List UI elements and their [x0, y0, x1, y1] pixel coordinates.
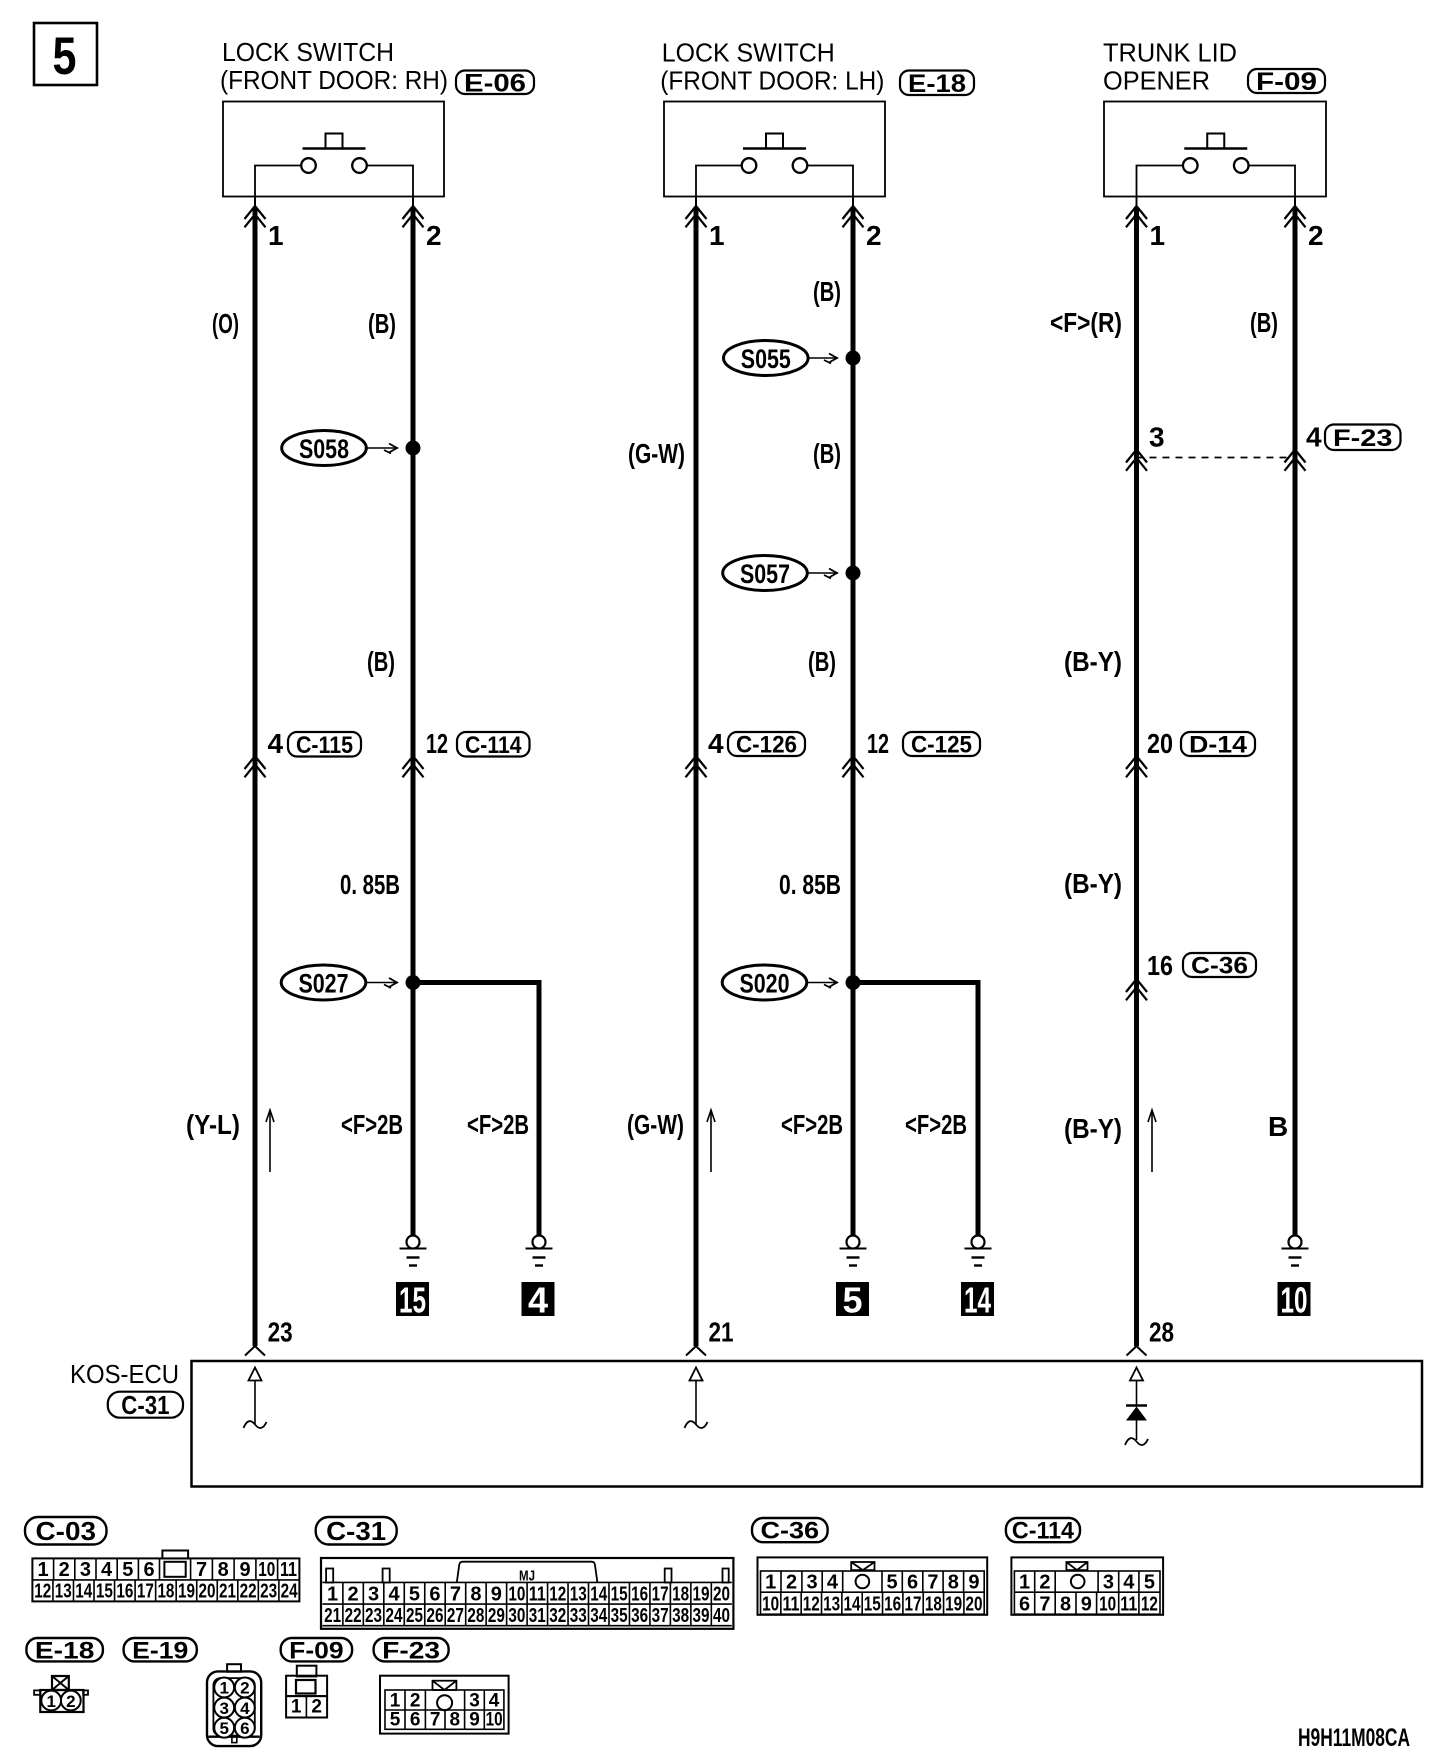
svg-text:9: 9: [239, 1559, 250, 1581]
svg-text:11: 11: [782, 1594, 799, 1616]
svg-text:12: 12: [803, 1594, 820, 1616]
svg-text:F-09: F-09: [289, 1637, 343, 1664]
svg-text:24: 24: [281, 1581, 299, 1603]
svg-text:C-36: C-36: [1191, 953, 1248, 980]
svg-text:15: 15: [399, 1280, 426, 1321]
svg-text:4: 4: [708, 728, 724, 759]
svg-text:4: 4: [101, 1559, 113, 1581]
svg-text:0. 85B: 0. 85B: [779, 869, 841, 900]
svg-text:4: 4: [240, 1699, 250, 1718]
svg-text:C-114: C-114: [1012, 1518, 1075, 1545]
svg-text:6: 6: [240, 1719, 249, 1738]
svg-text:7: 7: [450, 1584, 461, 1606]
svg-text:3: 3: [806, 1572, 817, 1594]
svg-text:13: 13: [823, 1594, 840, 1616]
svg-text:(B): (B): [808, 646, 836, 677]
svg-text:26: 26: [426, 1605, 443, 1627]
svg-text:F-23: F-23: [382, 1637, 440, 1664]
svg-text:KOS-ECU: KOS-ECU: [70, 1359, 179, 1389]
svg-text:E-19: E-19: [132, 1637, 188, 1664]
svg-text:30: 30: [508, 1605, 525, 1627]
svg-text:4: 4: [827, 1572, 839, 1594]
svg-text:7: 7: [430, 1710, 441, 1731]
svg-text:36: 36: [631, 1605, 648, 1627]
svg-text:8: 8: [1060, 1594, 1071, 1616]
svg-text:15: 15: [864, 1594, 881, 1616]
svg-text:1: 1: [37, 1559, 48, 1581]
svg-text:38: 38: [672, 1605, 689, 1627]
svg-text:5: 5: [219, 1719, 228, 1738]
svg-text:22: 22: [240, 1581, 257, 1603]
svg-text:E-18: E-18: [35, 1637, 95, 1664]
svg-text:1: 1: [219, 1679, 228, 1698]
svg-text:10: 10: [486, 1710, 503, 1731]
svg-text:1: 1: [291, 1697, 302, 1718]
svg-text:(B): (B): [813, 276, 841, 307]
svg-text:12: 12: [549, 1584, 566, 1606]
svg-text:S058: S058: [299, 434, 349, 464]
svg-text:1: 1: [709, 220, 725, 251]
svg-text:15: 15: [611, 1584, 628, 1606]
svg-text:C-125: C-125: [911, 732, 972, 759]
svg-text:4: 4: [1306, 422, 1322, 453]
svg-text:(FRONT DOOR: LH): (FRONT DOOR: LH): [660, 66, 884, 96]
svg-text:18: 18: [925, 1594, 942, 1616]
svg-text:12: 12: [34, 1581, 51, 1603]
svg-text:(O): (O): [212, 308, 239, 339]
svg-text:8: 8: [450, 1710, 461, 1731]
svg-text:C-114: C-114: [465, 732, 522, 759]
svg-text:3: 3: [1149, 422, 1165, 453]
svg-text:3: 3: [80, 1559, 91, 1581]
svg-text:F-23: F-23: [1333, 425, 1393, 452]
svg-text:2: 2: [240, 1679, 249, 1698]
svg-text:E-06: E-06: [464, 69, 526, 97]
svg-text:1: 1: [268, 220, 284, 251]
svg-text:10: 10: [258, 1559, 275, 1581]
svg-text:11: 11: [529, 1584, 546, 1606]
svg-text:21: 21: [219, 1581, 236, 1603]
svg-text:(B): (B): [813, 438, 841, 469]
svg-text:0. 85B: 0. 85B: [340, 869, 400, 900]
svg-text:16: 16: [1147, 950, 1173, 981]
svg-text:16: 16: [116, 1581, 133, 1603]
svg-text:1: 1: [1019, 1572, 1030, 1594]
svg-text:2: 2: [866, 220, 882, 251]
svg-text:20: 20: [713, 1584, 730, 1606]
svg-text:5: 5: [887, 1572, 898, 1594]
svg-text:17: 17: [652, 1584, 669, 1606]
svg-text:37: 37: [652, 1605, 669, 1627]
svg-text:C-31: C-31: [326, 1516, 386, 1546]
svg-text:(G-W): (G-W): [628, 438, 685, 469]
svg-text:<F>(R): <F>(R): [1050, 307, 1122, 338]
svg-text:2: 2: [426, 220, 442, 251]
svg-text:7: 7: [1039, 1594, 1050, 1616]
svg-text:20: 20: [199, 1581, 216, 1603]
svg-text:20: 20: [966, 1594, 983, 1616]
svg-text:15: 15: [96, 1581, 113, 1603]
svg-text:C-36: C-36: [761, 1518, 820, 1545]
svg-text:21: 21: [324, 1605, 341, 1627]
svg-text:5: 5: [842, 1280, 862, 1321]
svg-text:13: 13: [55, 1581, 72, 1603]
svg-text:5: 5: [409, 1584, 420, 1606]
svg-text:34: 34: [590, 1605, 608, 1627]
svg-text:4: 4: [268, 728, 284, 759]
svg-text:10: 10: [762, 1594, 779, 1616]
svg-text:H9H11M08CA: H9H11M08CA: [1298, 1724, 1410, 1752]
svg-text:LOCK SWITCH: LOCK SWITCH: [222, 37, 394, 67]
svg-text:8: 8: [470, 1584, 481, 1606]
svg-text:4: 4: [388, 1584, 400, 1606]
svg-text:2: 2: [66, 1692, 75, 1711]
svg-text:24: 24: [386, 1605, 404, 1627]
svg-text:C-31: C-31: [121, 1390, 169, 1420]
svg-text:9: 9: [469, 1710, 480, 1731]
svg-text:6: 6: [907, 1572, 918, 1594]
svg-text:11: 11: [280, 1559, 297, 1581]
svg-text:LOCK SWITCH: LOCK SWITCH: [662, 38, 835, 68]
svg-text:29: 29: [488, 1605, 505, 1627]
svg-text:4: 4: [489, 1691, 500, 1712]
svg-text:8: 8: [948, 1572, 959, 1594]
svg-text:9: 9: [1081, 1594, 1092, 1616]
svg-text:4: 4: [1123, 1572, 1135, 1594]
svg-text:9: 9: [968, 1572, 979, 1594]
svg-text:4: 4: [528, 1280, 548, 1321]
svg-text:27: 27: [447, 1605, 464, 1627]
svg-text:21: 21: [709, 1317, 734, 1348]
svg-text:10: 10: [1099, 1594, 1116, 1616]
svg-text:5: 5: [1144, 1572, 1155, 1594]
svg-text:D-14: D-14: [1189, 732, 1248, 759]
svg-text:14: 14: [843, 1594, 861, 1616]
svg-text:28: 28: [467, 1605, 484, 1627]
svg-text:2: 2: [1039, 1572, 1050, 1594]
svg-text:1: 1: [1150, 220, 1166, 251]
svg-text:<F>2B: <F>2B: [905, 1109, 967, 1140]
svg-text:3: 3: [219, 1699, 228, 1718]
svg-text:5: 5: [122, 1559, 133, 1581]
svg-text:17: 17: [137, 1581, 154, 1603]
svg-text:19: 19: [178, 1581, 195, 1603]
svg-text:12: 12: [1141, 1594, 1158, 1616]
svg-text:(B): (B): [368, 308, 396, 339]
svg-text:5: 5: [390, 1710, 401, 1731]
svg-text:1: 1: [765, 1572, 776, 1594]
svg-text:(B): (B): [1250, 307, 1278, 338]
svg-text:TRUNK LID: TRUNK LID: [1103, 38, 1237, 68]
svg-text:1: 1: [327, 1584, 338, 1606]
svg-text:39: 39: [693, 1605, 710, 1627]
svg-text:3: 3: [368, 1584, 379, 1606]
svg-text:2: 2: [311, 1697, 322, 1718]
svg-text:7: 7: [196, 1559, 207, 1581]
svg-text:(Y-L): (Y-L): [186, 1109, 240, 1140]
svg-text:14: 14: [964, 1280, 991, 1321]
svg-text:32: 32: [549, 1605, 566, 1627]
svg-text:2: 2: [348, 1584, 359, 1606]
svg-text:14: 14: [590, 1584, 608, 1606]
svg-text:<F>2B: <F>2B: [341, 1109, 403, 1140]
svg-text:S055: S055: [741, 344, 791, 374]
svg-text:11: 11: [1120, 1594, 1137, 1616]
svg-text:S020: S020: [740, 969, 790, 999]
svg-text:5: 5: [53, 27, 77, 86]
svg-text:C-126: C-126: [736, 732, 797, 759]
svg-text:18: 18: [672, 1584, 689, 1606]
svg-text:18: 18: [157, 1581, 174, 1603]
svg-text:19: 19: [693, 1584, 710, 1606]
svg-text:(FRONT DOOR: RH): (FRONT DOOR: RH): [220, 65, 448, 95]
svg-text:28: 28: [1149, 1317, 1174, 1348]
svg-text:(B): (B): [367, 646, 395, 677]
svg-text:12: 12: [867, 728, 889, 759]
svg-text:35: 35: [611, 1605, 628, 1627]
svg-text:(B-Y): (B-Y): [1064, 1113, 1122, 1144]
svg-text:25: 25: [406, 1605, 423, 1627]
svg-text:C-115: C-115: [296, 732, 353, 759]
svg-text:1: 1: [390, 1691, 401, 1712]
svg-text:(B-Y): (B-Y): [1064, 868, 1122, 899]
svg-text:2: 2: [59, 1559, 70, 1581]
svg-text:1: 1: [46, 1692, 55, 1711]
svg-text:23: 23: [268, 1317, 293, 1348]
svg-text:13: 13: [570, 1584, 587, 1606]
svg-text:F-09: F-09: [1256, 68, 1317, 96]
svg-text:6: 6: [429, 1584, 440, 1606]
svg-text:16: 16: [631, 1584, 648, 1606]
svg-text:10: 10: [508, 1584, 525, 1606]
svg-text:8: 8: [218, 1559, 229, 1581]
svg-text:10: 10: [1281, 1280, 1308, 1321]
svg-text:9: 9: [491, 1584, 502, 1606]
svg-text:E-18: E-18: [908, 70, 966, 98]
svg-text:C-03: C-03: [36, 1516, 97, 1546]
svg-text:22: 22: [345, 1605, 362, 1627]
svg-text:2: 2: [410, 1691, 421, 1712]
svg-text:B: B: [1268, 1111, 1288, 1142]
svg-text:S057: S057: [740, 559, 790, 589]
svg-text:17: 17: [904, 1594, 921, 1616]
svg-text:6: 6: [1019, 1594, 1030, 1616]
svg-text:<F>2B: <F>2B: [781, 1109, 843, 1140]
svg-text:S027: S027: [299, 969, 349, 999]
svg-text:19: 19: [945, 1594, 962, 1616]
svg-text:2: 2: [1308, 220, 1324, 251]
svg-text:20: 20: [1147, 728, 1173, 759]
svg-text:23: 23: [260, 1581, 277, 1603]
svg-text:16: 16: [884, 1594, 901, 1616]
svg-text:(G-W): (G-W): [627, 1109, 684, 1140]
svg-text:6: 6: [410, 1710, 421, 1731]
svg-text:6: 6: [143, 1559, 154, 1581]
svg-text:(B-Y): (B-Y): [1064, 646, 1122, 677]
svg-text:2: 2: [786, 1572, 797, 1594]
svg-text:40: 40: [713, 1605, 730, 1627]
svg-text:<F>2B: <F>2B: [467, 1109, 529, 1140]
svg-text:14: 14: [75, 1581, 93, 1603]
svg-text:12: 12: [426, 728, 448, 759]
svg-text:31: 31: [529, 1605, 546, 1627]
svg-text:OPENER: OPENER: [1103, 66, 1210, 96]
svg-text:3: 3: [469, 1691, 480, 1712]
svg-text:33: 33: [570, 1605, 587, 1627]
svg-text:7: 7: [927, 1572, 938, 1594]
svg-text:3: 3: [1103, 1572, 1114, 1594]
svg-text:23: 23: [365, 1605, 382, 1627]
